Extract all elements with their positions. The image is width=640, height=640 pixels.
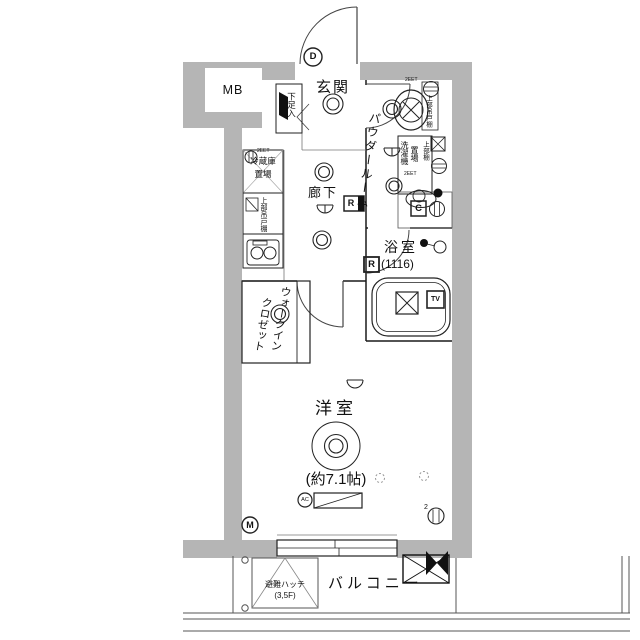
shelf-icon-diagonal <box>246 198 258 211</box>
light-icon-powder1 <box>383 100 401 118</box>
light-icon-genkan <box>323 94 343 114</box>
washer-label-1: 洗濯機 <box>400 141 408 165</box>
escape-hatch-label-2: (3,5F) <box>274 592 295 600</box>
wall-mb-bottom <box>183 112 262 128</box>
outlet-pins <box>433 510 439 523</box>
d-marker-label: D <box>310 52 317 62</box>
shower-head-icon <box>434 241 446 253</box>
ac-marker-label: AC <box>301 498 309 504</box>
genkan-label: 玄関 <box>316 80 350 95</box>
dashed-marks <box>376 472 429 483</box>
outlet-pins <box>435 203 440 216</box>
ceiling-rose-outer <box>312 422 360 470</box>
floor-plan: MB 玄関 下足入 パウダールーム 廊下 冷蔵庫 置場 上部吊戸棚 上部吊戸棚 … <box>0 0 640 640</box>
outlet-icon <box>428 508 444 524</box>
outlet-icon <box>430 202 445 217</box>
refrigerator-label-1: 冷蔵庫 <box>250 157 276 166</box>
faucet-icon <box>434 189 443 198</box>
light-icon-genkan-inner <box>327 98 339 110</box>
wall-bottom-left <box>183 540 277 558</box>
light-icon-powder1-inner <box>387 104 398 115</box>
ac-unit-diagonal <box>314 493 362 508</box>
dashed-circle <box>420 472 429 481</box>
tv-marker-label: TV <box>431 296 440 303</box>
outlet-count-label: 2 <box>424 504 428 511</box>
washer-tap-icon <box>432 159 447 174</box>
balcony-fence-lines <box>183 613 630 631</box>
floor-plan-drawing <box>0 0 640 640</box>
outlet-spec-label: 2EET <box>257 149 270 154</box>
escape-hatch-label-1: 避難ハッチ <box>265 581 305 589</box>
r-marker-label-hall: R <box>348 199 355 208</box>
outlet-pins <box>424 87 438 91</box>
washer-upper-shelf-label: 上部棚 <box>421 141 428 161</box>
dashed-circle <box>376 474 385 483</box>
m-marker-label: M <box>246 521 254 530</box>
r-marker-label-bath: R <box>368 260 375 270</box>
light-icon-powder2 <box>386 178 402 194</box>
stove-control <box>253 241 267 245</box>
bathroom-label: 浴室 <box>384 240 418 254</box>
outlet-spec-label: 2EET <box>404 172 417 177</box>
shower-hook-icon <box>420 239 428 247</box>
shoe-cabinet-label: 下足入 <box>287 92 296 118</box>
refrigerator-label-2: 置場 <box>254 170 271 179</box>
genkan-closet-fold-mark <box>297 104 309 130</box>
wall-left <box>224 128 242 555</box>
entrance-door-arc <box>300 7 357 64</box>
room-door-arc <box>297 281 343 327</box>
western-room-size-label: (約7.1帖) <box>306 472 367 487</box>
burner-icon <box>264 247 276 259</box>
light-icon-hall1-inner <box>319 167 330 178</box>
outlet-spec-label: 2EET <box>405 78 418 83</box>
burner-icon <box>251 247 263 259</box>
wall-right <box>452 62 472 558</box>
sconce-icon-room <box>347 380 363 388</box>
balcony-right-divider <box>622 556 629 613</box>
toilet-cross <box>403 102 419 118</box>
toilet-upper-cabinet-label: 上部吊戸棚 <box>424 95 431 128</box>
light-icon-hall2-inner <box>317 235 328 246</box>
washer-tap-pins <box>432 164 446 168</box>
mb-label: MB <box>223 84 244 97</box>
sconce-icon-hall <box>317 205 333 213</box>
ceiling-rose-inner <box>329 439 343 453</box>
light-icon-hall1 <box>315 163 333 181</box>
light-icon-hall2 <box>313 231 331 249</box>
shower-hose <box>427 244 435 246</box>
balcony-drain <box>242 605 248 611</box>
hallway-label: 廊下 <box>308 186 338 199</box>
ceiling-rose-mid <box>325 435 348 458</box>
access-panel-cross <box>431 137 445 151</box>
balcony-label: バルコニー <box>328 576 423 591</box>
c-marker-label: C <box>415 204 422 214</box>
western-room-label: 洋室 <box>315 400 357 417</box>
washer-label-2: 置場 <box>410 146 418 162</box>
balcony-window <box>277 540 397 556</box>
tub-cross-lines <box>396 292 418 314</box>
bathroom-size-label: (1116) <box>381 258 414 270</box>
kitchen-upper-cabinet-label: 上部吊戸棚 <box>260 197 267 232</box>
